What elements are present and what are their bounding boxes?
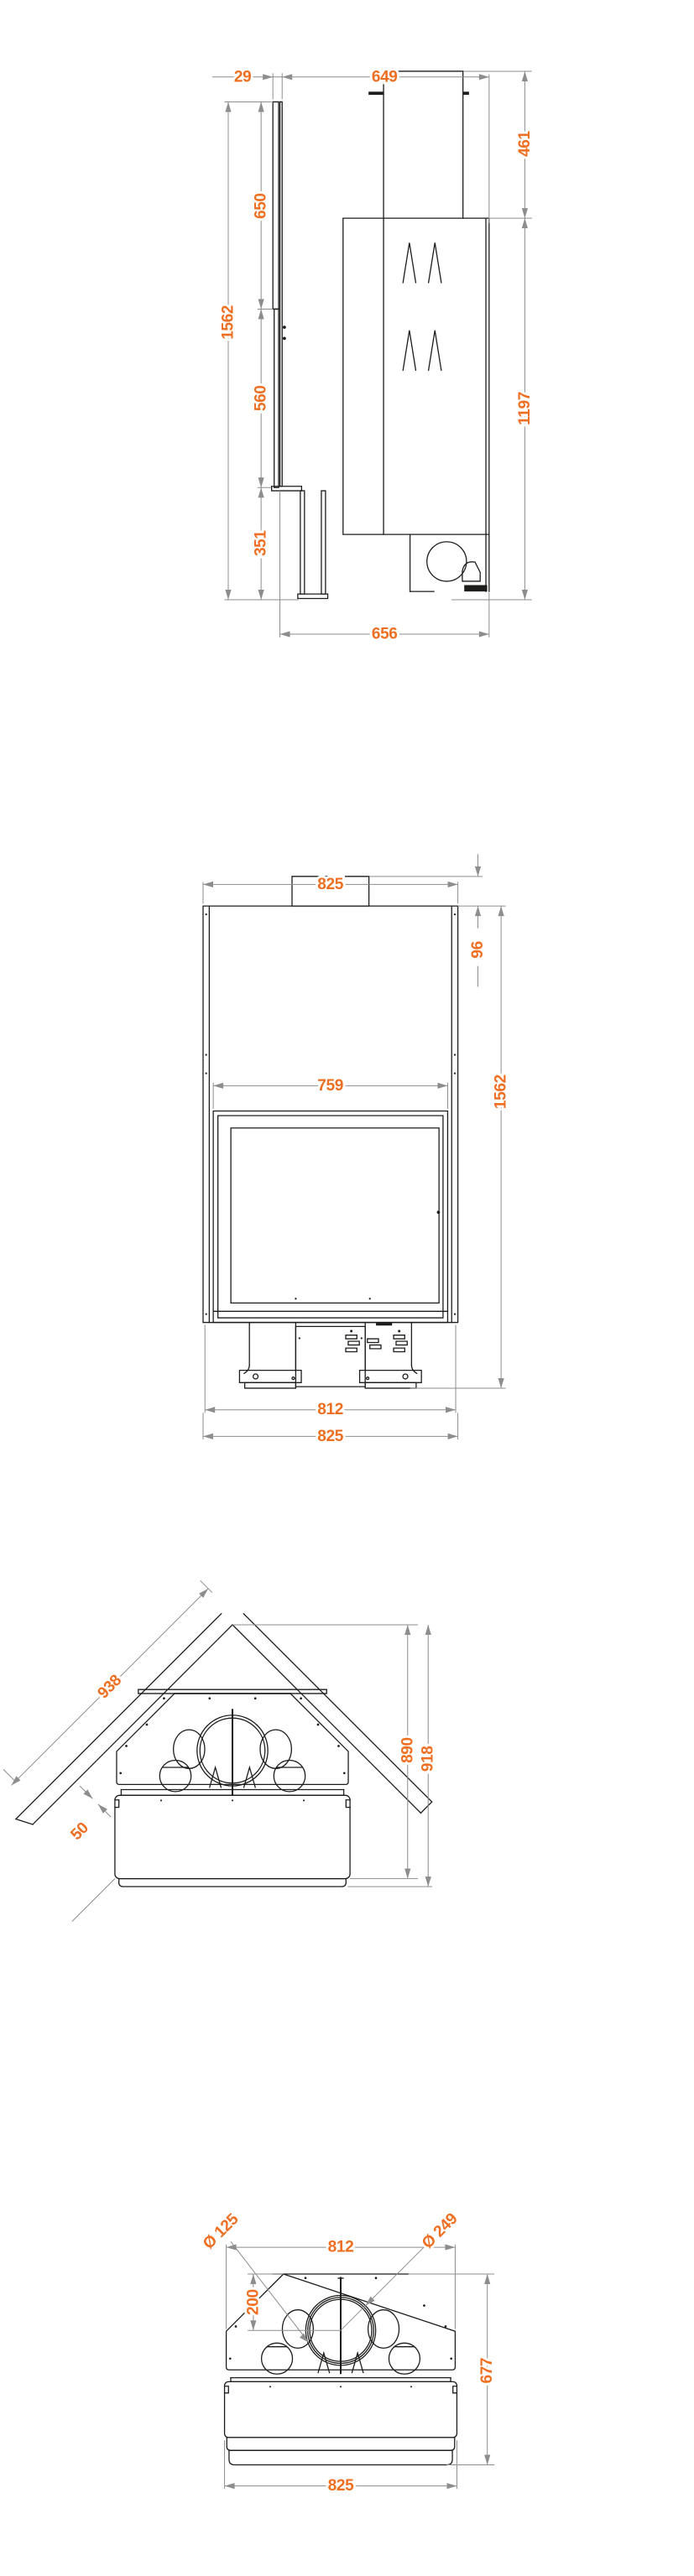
rear-heat-shield [272,101,302,491]
dimension-arrowhead [203,882,213,887]
dim-label-50: 50 [67,1819,91,1844]
dimension-arrowhead [425,1876,431,1886]
dim-label-649: 649 [372,68,398,86]
dimension-arrowhead [522,71,528,81]
dim-label-351: 351 [253,530,270,556]
appliance-top [227,2274,456,2374]
glass-door [213,1111,447,1325]
door-glass [231,1128,439,1304]
technical-drawing: 2964946111971562650560351656 [0,0,694,2576]
dimension-arrowhead [203,1434,213,1439]
dimension-arrowhead [258,309,264,319]
dimension-arrowhead [250,2274,256,2284]
dim-label-o249: Ø 249 [419,2210,461,2252]
dimension-arrowhead [213,1083,223,1089]
dimension-line [3,1769,15,1781]
dim-label-656: 656 [372,626,398,643]
corner-plan-view: 93850890918 [3,1580,437,1921]
dimension-arrowhead [280,631,290,637]
dim-label-96: 96 [469,941,487,959]
dimension-arrowhead [404,1625,410,1635]
dimension-arrowhead [479,74,489,80]
dimension-arrowhead [227,2244,237,2250]
bench-top [225,2378,457,2465]
dimension-arrowhead [479,631,489,637]
dim-label-29: 29 [234,68,251,86]
dim-label-812: 812 [317,1401,343,1418]
rear-support-leg [298,491,328,598]
dimension-arrowhead [522,218,528,228]
dim-label-200: 200 [244,2289,262,2315]
dimension-arrowhead [258,299,264,309]
dimension-arrowhead [446,1407,456,1413]
dim-label-461: 461 [516,131,534,157]
dimension-arrowhead [475,906,481,916]
dimension-arrowhead [258,477,264,487]
front-view: 825961562759812825 [203,854,510,1445]
dimension-line [231,2241,309,2342]
damper-rod [340,2278,342,2374]
front-body [203,906,458,1322]
dimension-arrowhead [205,1407,215,1413]
dimension-arrowhead [522,590,528,600]
dimension-arrowhead [484,2274,490,2284]
corner-plan-structure [16,1614,432,1886]
dimension-arrowhead [225,590,231,600]
dimension-arrowhead [522,208,528,218]
air-spigot-circle [427,542,467,581]
dim-label-560: 560 [253,386,270,412]
dim-label-1562-front: 1562 [493,1075,510,1109]
pedestal-legs [239,1323,421,1388]
dimension-arrowhead [258,101,264,112]
dimension-arrowhead [404,1869,410,1879]
corner-plan-dimensions: 93850890918 [3,1580,437,1921]
drawing-page: 2964946111971562650560351656 [0,0,694,2576]
dim-label-1197: 1197 [516,392,534,425]
dim-label-1562: 1562 [220,305,237,340]
dimension-arrowhead [498,906,504,916]
dimension-arrowhead [448,882,458,887]
dimension-arrowhead [498,1378,504,1388]
dim-label-825-top: 825 [317,876,344,893]
air-intake-compartment [410,534,489,591]
dimension-arrowhead [475,866,481,877]
dimension-arrowhead [425,1625,431,1635]
front-view-structure [203,877,458,1388]
dimension-arrowhead [484,2454,490,2464]
dim-label-890: 890 [399,1737,416,1763]
dim-label-677: 677 [478,2358,496,2384]
dim-label-650: 650 [253,193,270,219]
dimension-arrowhead [225,2483,235,2489]
damper-rod [232,1709,233,1796]
dimension-arrowhead [445,2244,455,2250]
door-handle [437,1210,441,1214]
dimension-arrowhead [282,74,292,80]
intake-port-right [368,2310,399,2349]
dim-label-759: 759 [317,1077,343,1095]
side-view: 2964946111971562650560351656 [212,68,534,643]
dimension-arrowhead [263,74,273,80]
firebox-body [343,218,489,591]
dimension-arrowhead [258,487,264,497]
chimney-collar [368,71,469,218]
dimension-line [341,2240,431,2331]
door-latch [376,1323,392,1326]
dim-label-812-top: 812 [328,2239,354,2256]
dim-label-825-bottom: 825 [317,1428,344,1445]
dimension-arrowhead [437,1083,447,1089]
dim-label-918: 918 [420,1746,437,1772]
top-view-dimensions: 812Ø 125Ø 249200677825 [200,2210,496,2495]
airflow-chevrons [403,242,441,370]
dimension-line [72,1879,115,1922]
top-view: 812Ø 125Ø 249200677825 [200,2210,496,2495]
dim-label-825-plan: 825 [328,2477,355,2495]
side-view-structure [272,71,489,599]
control-hardware [346,1330,407,1351]
dimension-arrowhead [448,1434,458,1439]
dimension-arrowhead [250,2320,256,2330]
dimension-arrowhead [225,101,231,112]
dimension-arrowhead [258,590,264,600]
dimension-arrowhead [446,2483,457,2489]
bench-plan [115,1790,350,1887]
